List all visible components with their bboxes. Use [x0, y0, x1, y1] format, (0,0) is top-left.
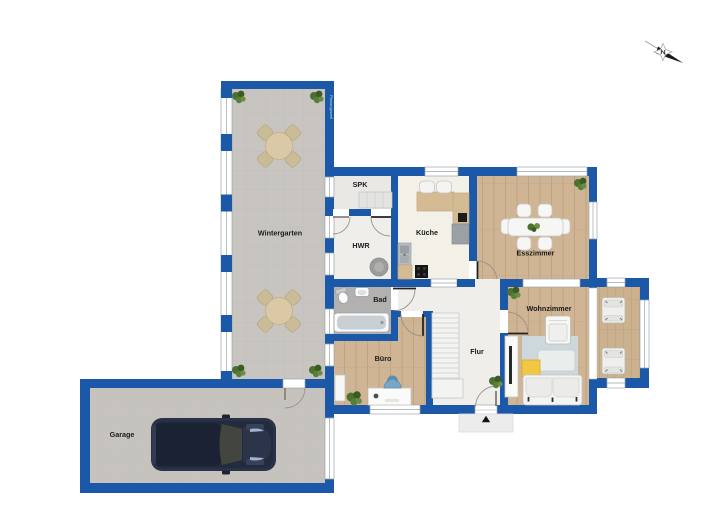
- svg-text:Flur: Flur: [470, 347, 484, 356]
- svg-text:Küche: Küche: [416, 228, 438, 237]
- svg-text:SPK: SPK: [353, 180, 369, 189]
- svg-text:Planungswelt: Planungswelt: [329, 95, 334, 120]
- svg-text:Büro: Büro: [375, 354, 392, 363]
- svg-text:Bad: Bad: [373, 295, 387, 304]
- svg-text:Wintergarten: Wintergarten: [258, 229, 302, 238]
- svg-text:HWR: HWR: [352, 241, 370, 250]
- svg-text:Garage: Garage: [110, 430, 135, 439]
- svg-text:Wohnzimmer: Wohnzimmer: [527, 304, 572, 313]
